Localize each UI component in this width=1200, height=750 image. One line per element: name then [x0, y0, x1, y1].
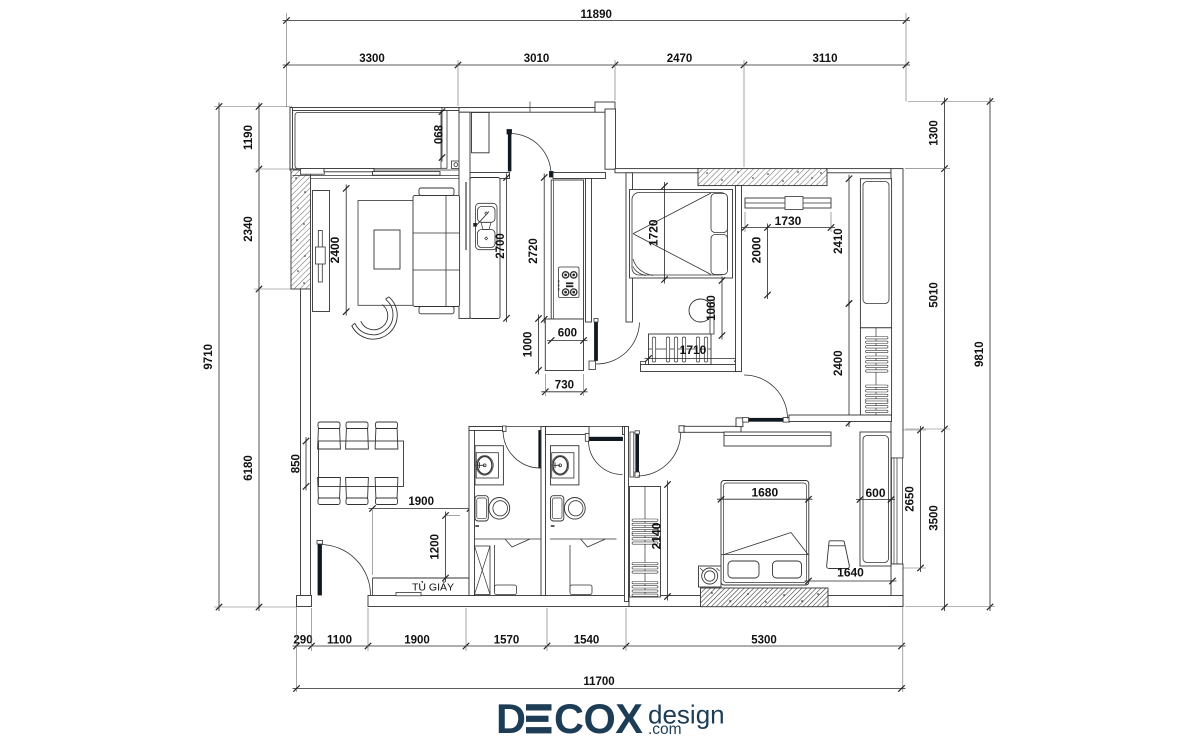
svg-text:1710: 1710 [680, 343, 707, 357]
svg-text:2650: 2650 [905, 486, 917, 512]
svg-text:1730: 1730 [775, 214, 802, 228]
svg-text:1100: 1100 [327, 635, 352, 647]
svg-text:3110: 3110 [813, 53, 838, 65]
svg-text:2140: 2140 [650, 522, 664, 549]
svg-text:1680: 1680 [751, 486, 778, 500]
svg-text:2400: 2400 [328, 236, 342, 263]
svg-text:2410: 2410 [833, 228, 845, 254]
svg-text:11890: 11890 [581, 9, 612, 21]
svg-text:9710: 9710 [203, 344, 215, 370]
svg-text:2720: 2720 [528, 238, 540, 264]
svg-text:1060: 1060 [706, 295, 718, 321]
svg-text:6180: 6180 [243, 455, 255, 481]
svg-text:890: 890 [431, 125, 443, 144]
svg-text:2400: 2400 [833, 350, 845, 376]
svg-text:3300: 3300 [359, 53, 385, 65]
svg-text:2700: 2700 [495, 233, 507, 259]
svg-text:11700: 11700 [583, 676, 614, 688]
svg-text:.com: .com [648, 721, 682, 738]
svg-text:1200: 1200 [430, 534, 442, 560]
svg-text:1540: 1540 [574, 635, 600, 647]
svg-text:2000: 2000 [750, 236, 764, 263]
svg-text:3500: 3500 [929, 505, 941, 531]
svg-text:COX: COX [554, 695, 643, 742]
svg-text:5300: 5300 [751, 635, 777, 647]
svg-text:5010: 5010 [929, 282, 941, 308]
svg-text:730: 730 [555, 380, 574, 392]
svg-text:1300: 1300 [929, 120, 941, 146]
svg-text:1900: 1900 [408, 496, 434, 508]
svg-text:D: D [496, 695, 526, 742]
svg-text:2470: 2470 [667, 53, 693, 65]
svg-text:1640: 1640 [837, 566, 864, 580]
svg-text:850: 850 [291, 454, 303, 473]
svg-text:1570: 1570 [494, 635, 520, 647]
svg-text:1190: 1190 [243, 125, 255, 150]
svg-text:1720: 1720 [647, 219, 661, 246]
svg-text:2340: 2340 [243, 216, 255, 242]
svg-text:1900: 1900 [404, 635, 430, 647]
svg-text:TỦ GIẢY: TỦ GIẢY [412, 581, 454, 594]
svg-text:600: 600 [865, 486, 885, 500]
svg-text:600: 600 [558, 328, 577, 340]
svg-text:9810: 9810 [974, 341, 986, 367]
svg-text:1000: 1000 [523, 332, 535, 358]
svg-text:3010: 3010 [524, 53, 550, 65]
